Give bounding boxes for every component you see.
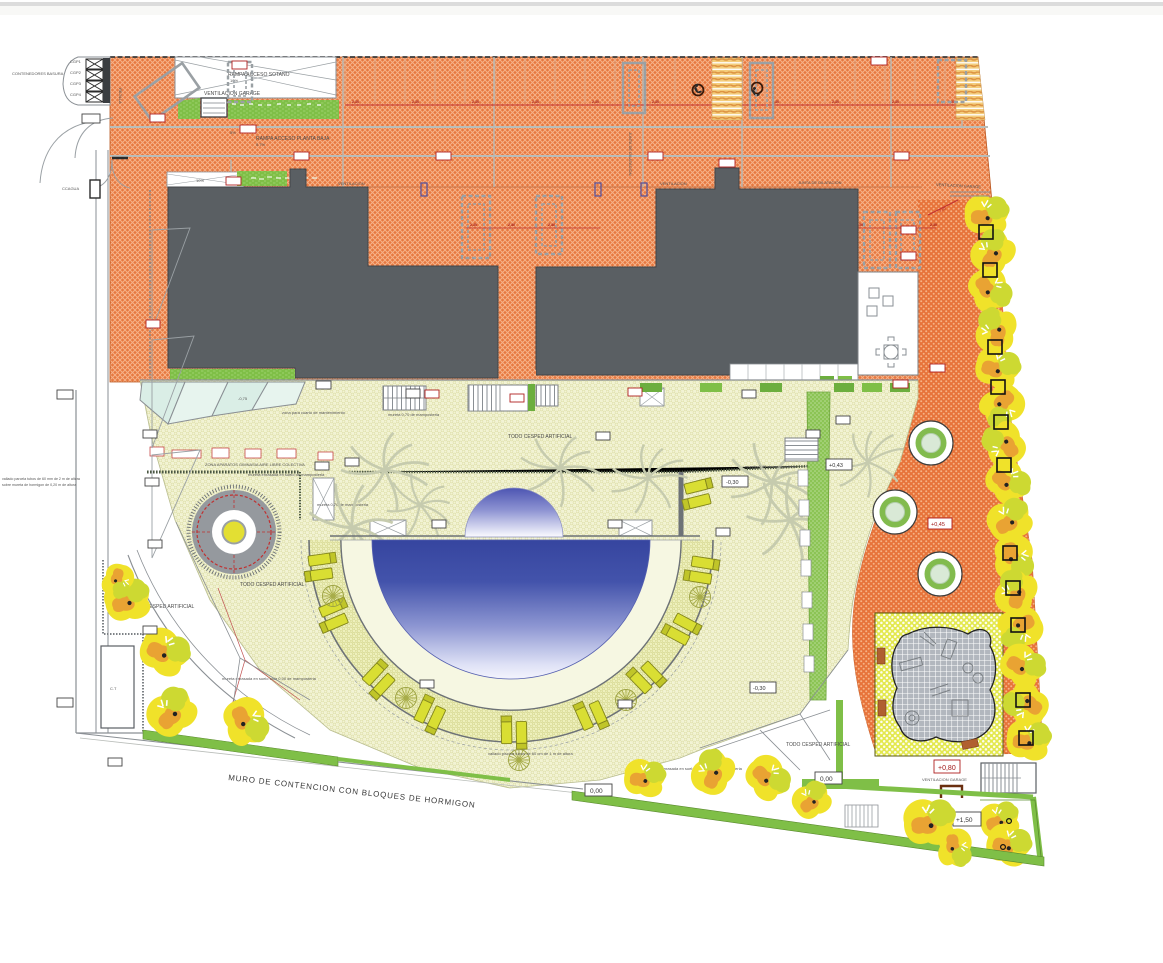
svg-text:5%: 5% [230,130,236,135]
svg-text:sobre mureta de hormigon de 0,: sobre mureta de hormigon de 0,20 m de al… [2,483,76,487]
svg-text:5.7%: 5.7% [256,142,266,147]
svg-text:CGP4: CGP4 [70,92,82,97]
svg-text:2,30: 2,30 [508,223,515,227]
svg-text:TODO CESPED ARTIFICIAL: TODO CESPED ARTIFICIAL [240,582,304,588]
svg-text:VENTILACION: VENTILACION [660,181,687,186]
svg-text:+0,43: +0,43 [829,463,843,469]
svg-text:CCAGUA: CCAGUA [62,186,79,191]
svg-text:REJILLA: REJILLA [118,88,123,104]
svg-text:TODO CESPED ARTIFICIAL: TODO CESPED ARTIFICIAL [508,434,572,440]
svg-text:-0,30: -0,30 [753,686,766,692]
svg-text:vallado piscina tubos de 60 cm: vallado piscina tubos de 60 cm de 1 m de… [488,751,573,756]
svg-text:CGP3: CGP3 [70,81,82,86]
svg-text:2,30: 2,30 [592,100,599,104]
svg-text:+1,50: +1,50 [956,817,973,824]
svg-text:C.T: C.T [110,686,117,691]
svg-text:2,30: 2,30 [548,223,555,227]
svg-text:2,30: 2,30 [472,100,479,104]
svg-text:CONTENEDORES BASURA: CONTENEDORES BASURA [12,71,64,76]
svg-text:VENTILACION GARAGE: VENTILACION GARAGE [922,777,967,782]
svg-text:-0,30: -0,30 [726,480,739,486]
svg-text:CGP2: CGP2 [70,70,82,75]
svg-text:VENTILACION: VENTILACION [338,181,365,186]
svg-text:2,30: 2,30 [532,100,539,104]
svg-text:2,30: 2,30 [470,223,477,227]
svg-text:mureta 0,70 de mamposteria: mureta 0,70 de mamposteria [388,412,440,417]
svg-text:2,30: 2,30 [412,100,419,104]
svg-text:zona para cuarto de mantenimie: zona para cuarto de mantenimiento [282,410,346,415]
svg-text:mureta 0,70 de mamposteria: mureta 0,70 de mamposteria [317,502,369,507]
svg-text:+0,45: +0,45 [931,522,945,528]
svg-text:CGP1: CGP1 [70,59,82,64]
svg-text:mureta enrasada en suelo cota: mureta enrasada en suelo cota 0,00 de ma… [222,676,317,681]
svg-text:mureta 0,85 de mamposteria: mureta 0,85 de mamposteria [745,464,797,469]
svg-text:-0,75: -0,75 [238,396,248,401]
svg-text:0,00: 0,00 [590,788,603,795]
svg-text:ZONA APARATOS GIMNASIA AIRE LI: ZONA APARATOS GIMNASIA AIRE LIBRE COLECT… [205,462,305,467]
svg-text:2,30: 2,30 [892,100,899,104]
svg-text:RAMPA ACCESO PLANTA BAJA: RAMPA ACCESO PLANTA BAJA [256,136,330,142]
svg-text:JUNTA DE DILATACION: JUNTA DE DILATACION [798,180,842,185]
svg-text:vallado parcela tubos de 60 mm: vallado parcela tubos de 60 mm de 2 m de… [2,477,80,481]
svg-text:10%: 10% [196,178,204,183]
svg-text:TODO CESPED ARTIFICIAL: TODO CESPED ARTIFICIAL [786,742,850,748]
svg-text:MURO DE CONTENCION CON BLOQUE: MURO DE CONTENCION CON BLOQUES DE HORMIG… [228,773,476,810]
svg-text:2,30: 2,30 [352,100,359,104]
svg-text:2,30: 2,30 [930,223,937,227]
svg-text:2,30: 2,30 [652,100,659,104]
svg-text:0,00: 0,00 [820,776,833,783]
svg-text:2,30: 2,30 [832,100,839,104]
svg-text:+0,80: +0,80 [938,765,956,772]
svg-text:JUNTA DE DILATACION: JUNTA DE DILATACION [628,132,633,176]
